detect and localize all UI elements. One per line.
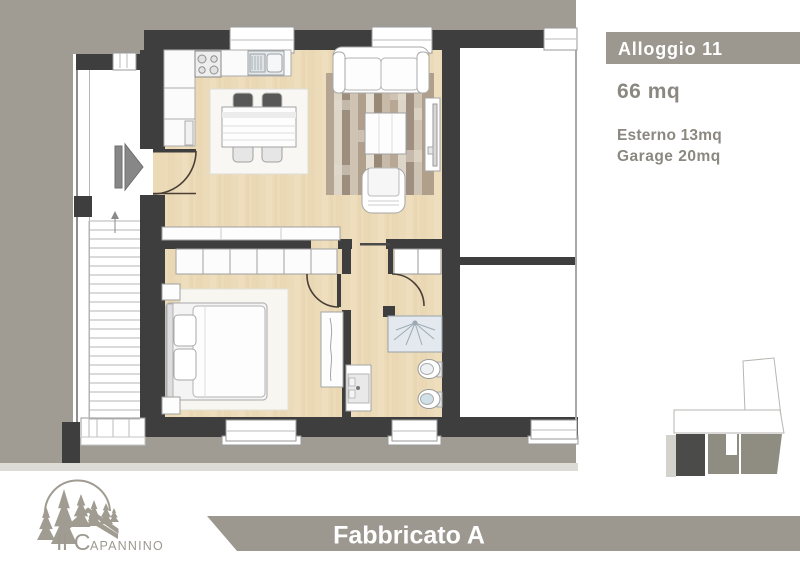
svg-text:Alloggio 11: Alloggio 11 xyxy=(618,39,723,59)
svg-text:Esterno 13mq: Esterno 13mq xyxy=(617,127,722,144)
svg-text:66 mq: 66 mq xyxy=(617,80,680,103)
svg-text:Garage 20mq: Garage 20mq xyxy=(617,148,721,165)
svg-text:APANNINO: APANNINO xyxy=(90,539,164,553)
svg-text:Il C: Il C xyxy=(56,529,91,555)
svg-text:Fabbricato A: Fabbricato A xyxy=(333,522,485,550)
